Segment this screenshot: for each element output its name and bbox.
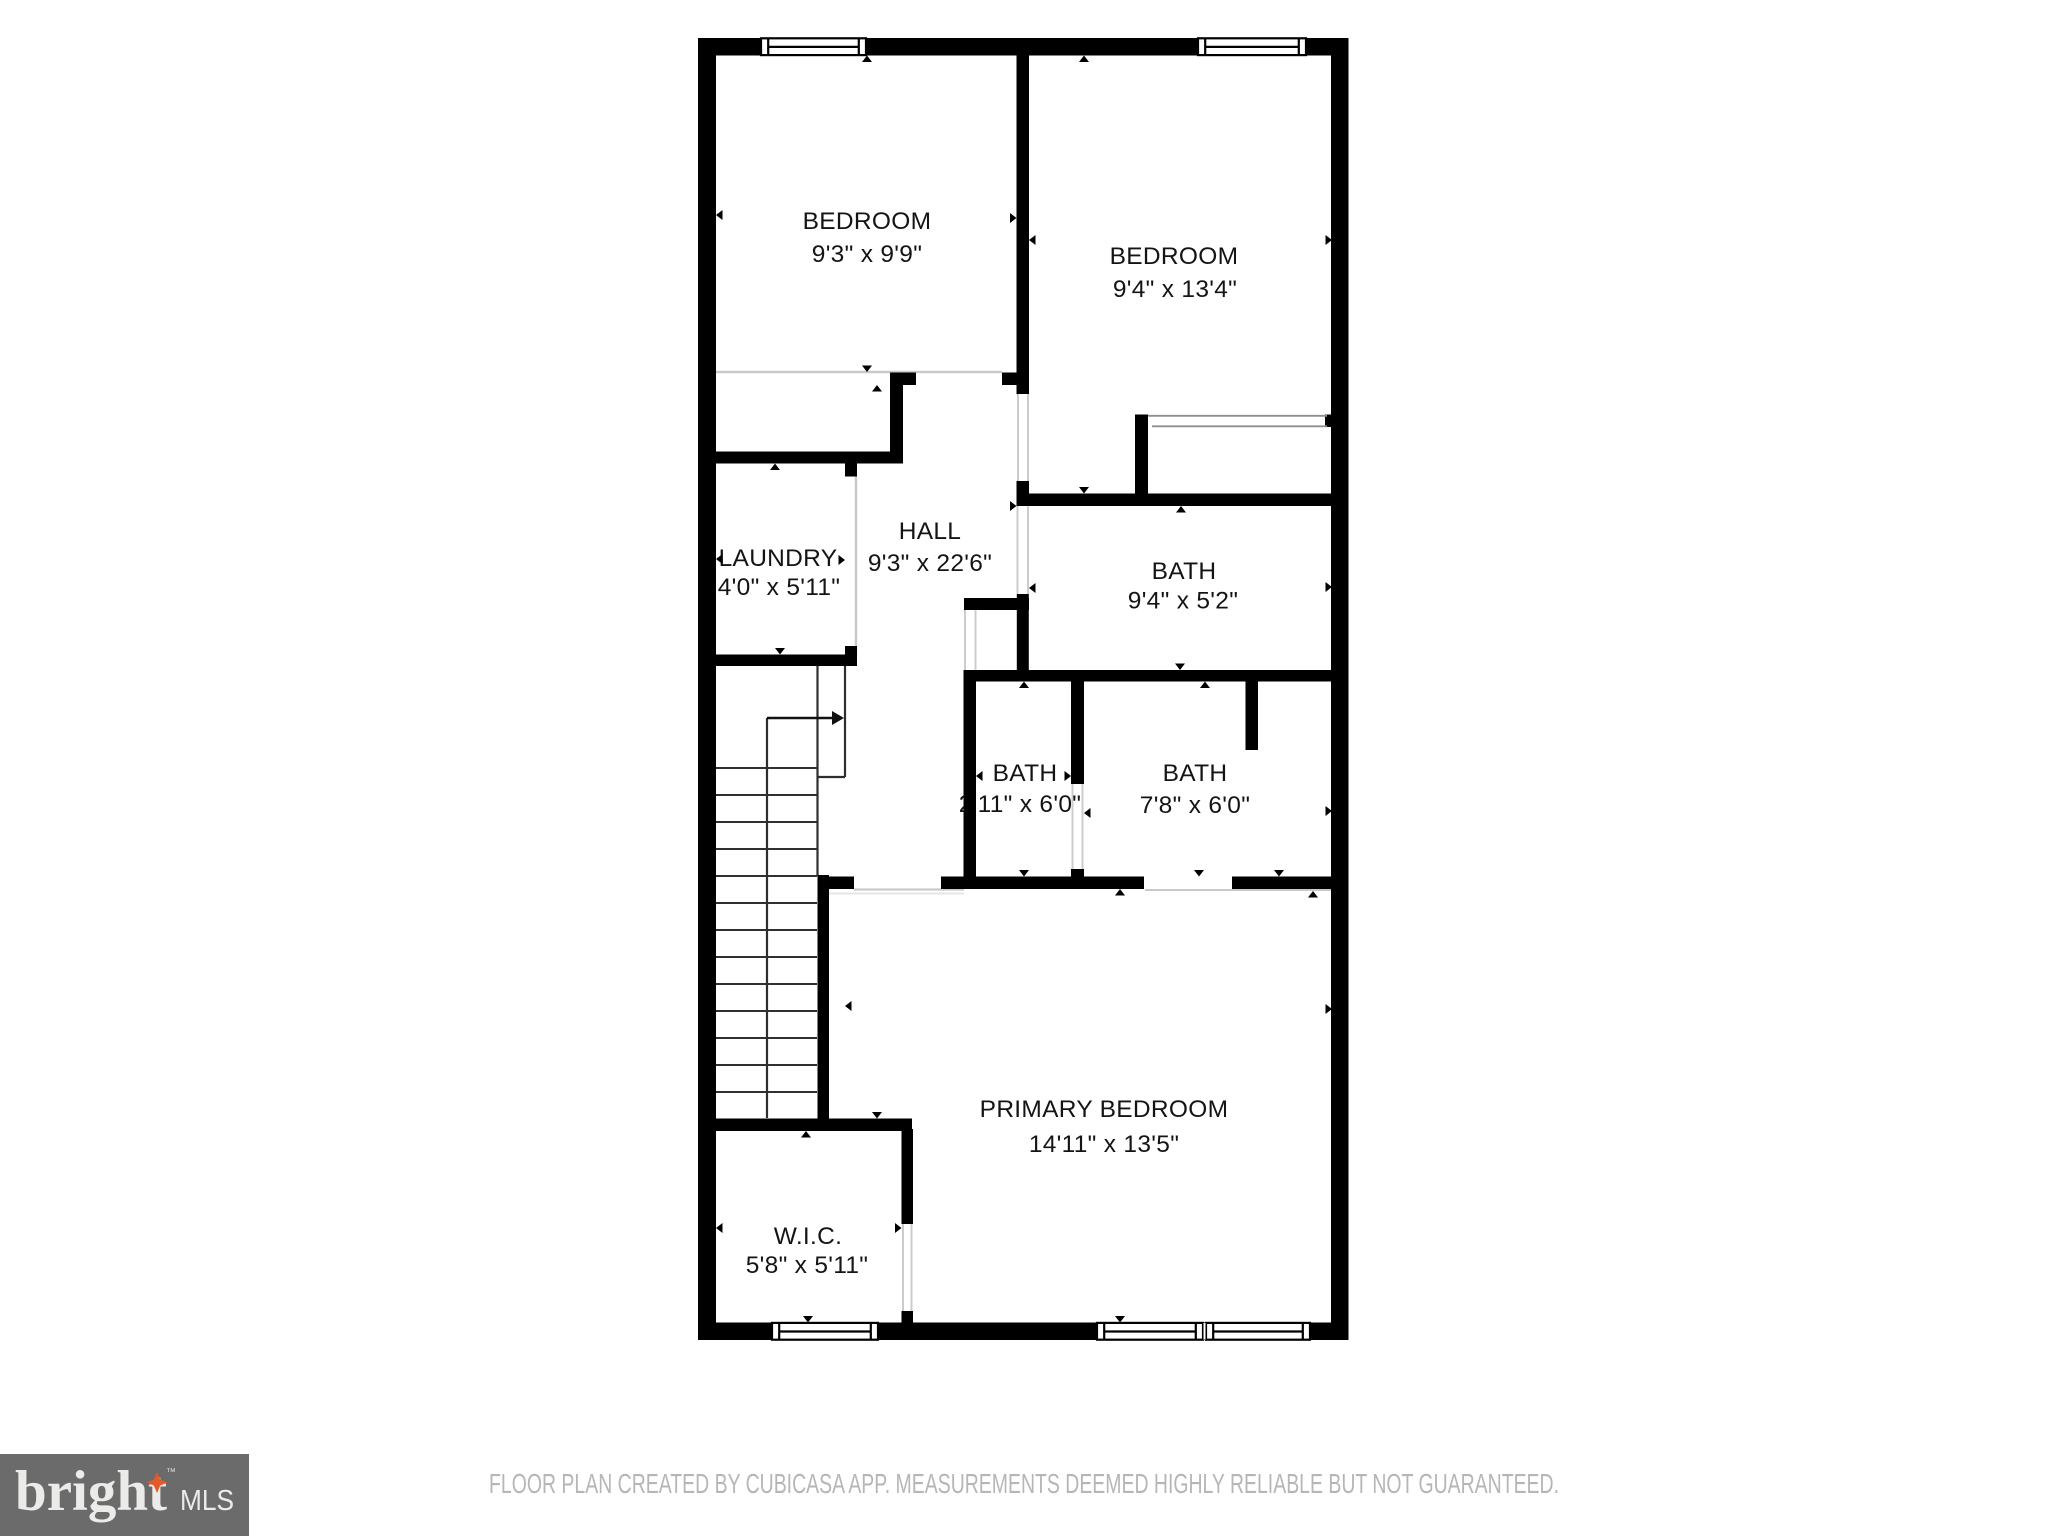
svg-text:4'0" x 5'11": 4'0" x 5'11" [718, 574, 841, 601]
svg-text:BATH: BATH [993, 760, 1058, 787]
svg-text:BATH: BATH [1163, 760, 1228, 787]
svg-text:PRIMARY BEDROOM: PRIMARY BEDROOM [980, 1096, 1229, 1123]
svg-text:FLOOR PLAN CREATED BY CUBICASA: FLOOR PLAN CREATED BY CUBICASA APP. MEAS… [489, 1468, 1559, 1499]
svg-text:HALL: HALL [899, 518, 962, 545]
svg-text:BEDROOM: BEDROOM [803, 208, 932, 235]
svg-text:9'4" x 5'2": 9'4" x 5'2" [1128, 588, 1238, 615]
svg-text:LAUNDRY: LAUNDRY [719, 545, 838, 572]
svg-text:BEDROOM: BEDROOM [1110, 243, 1239, 270]
svg-text:W.I.C.: W.I.C. [774, 1223, 843, 1250]
svg-text:2'11" x 6'0": 2'11" x 6'0" [959, 791, 1082, 818]
svg-text:9'3" x 9'9": 9'3" x 9'9" [812, 241, 922, 268]
svg-text:9'4" x 13'4": 9'4" x 13'4" [1113, 276, 1237, 303]
svg-text:BATH: BATH [1152, 558, 1217, 585]
svg-text:™: ™ [166, 1467, 176, 1478]
svg-text:bright: bright [15, 1460, 167, 1523]
svg-text:9'3" x 22'6": 9'3" x 22'6" [868, 550, 992, 577]
svg-text:14'11" x 13'5": 14'11" x 13'5" [1029, 1131, 1179, 1158]
svg-text:MLS: MLS [180, 1485, 234, 1517]
svg-text:7'8" x 6'0": 7'8" x 6'0" [1140, 792, 1250, 819]
svg-text:5'8" x 5'11": 5'8" x 5'11" [746, 1252, 869, 1279]
